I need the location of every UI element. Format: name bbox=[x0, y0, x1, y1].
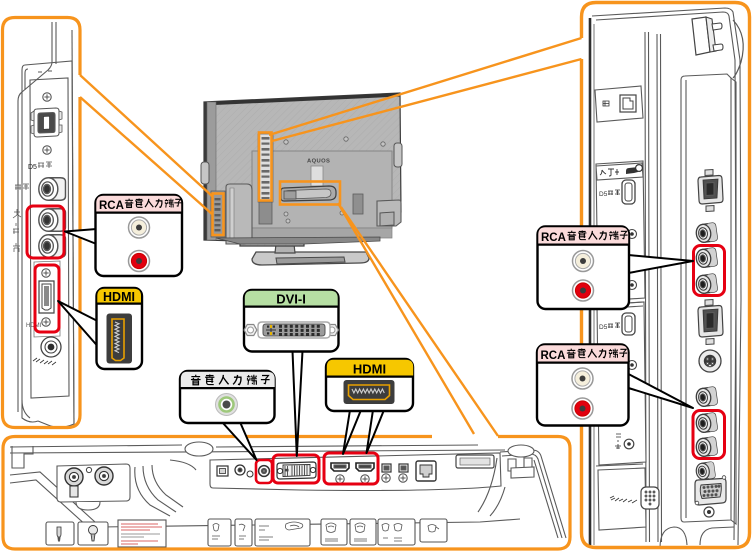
svg-text:DVI-I: DVI-I bbox=[276, 292, 306, 307]
svg-text:RCA: RCA bbox=[99, 200, 124, 212]
svg-text:RCA: RCA bbox=[541, 232, 566, 244]
svg-text:D5: D5 bbox=[599, 324, 608, 331]
svg-text:RCA: RCA bbox=[541, 350, 566, 362]
svg-text:HDMI: HDMI bbox=[353, 362, 386, 377]
svg-text:D5: D5 bbox=[599, 191, 608, 198]
svg-text:AQUOS: AQUOS bbox=[307, 159, 330, 165]
svg-text:D5: D5 bbox=[28, 164, 37, 171]
svg-text:HDMI: HDMI bbox=[103, 290, 135, 304]
